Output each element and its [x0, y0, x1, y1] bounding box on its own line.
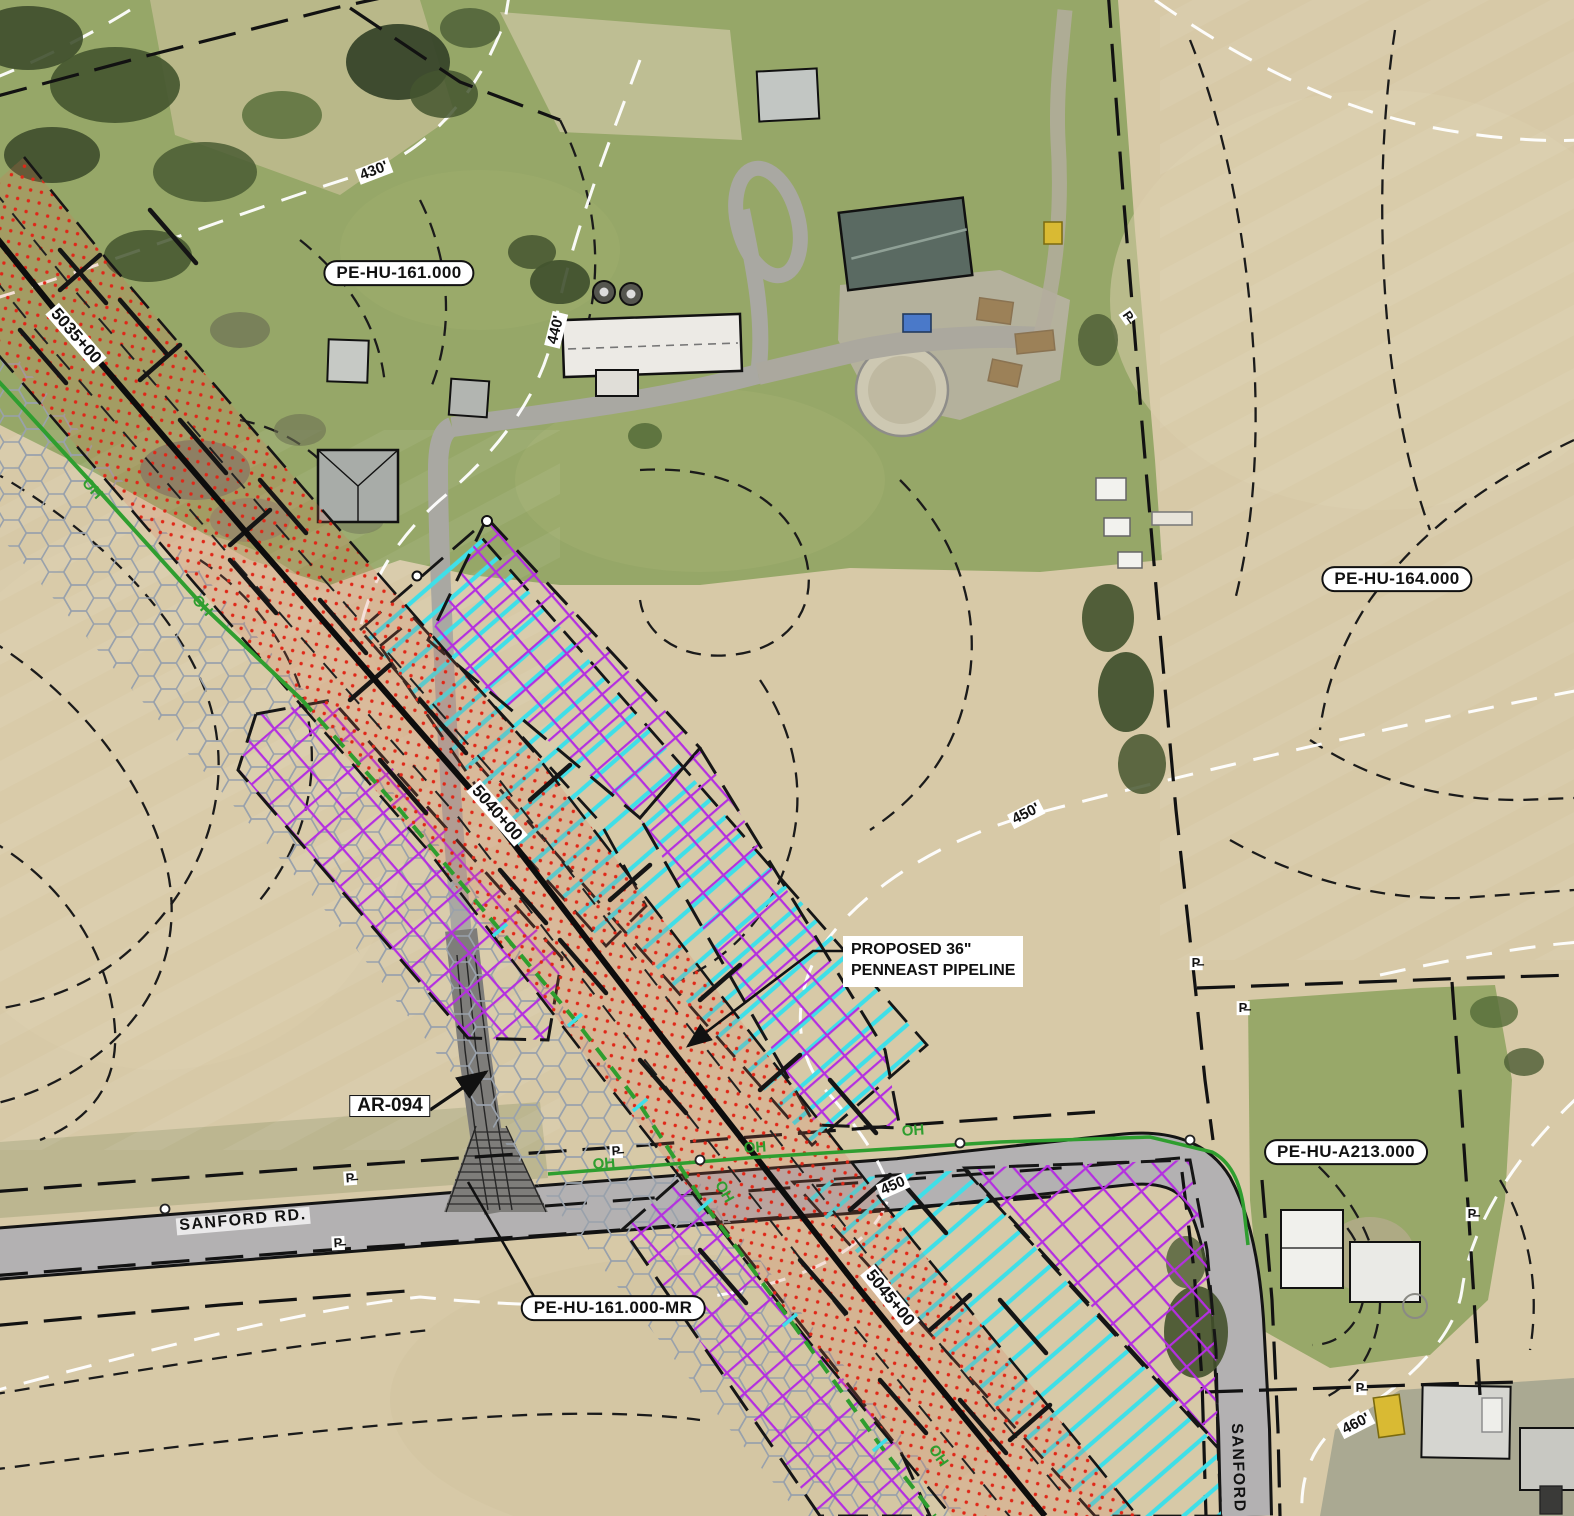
pipeline-callout-line2: PENNEAST PIPELINE	[851, 961, 1015, 982]
workspace-corner-marker-icon	[482, 516, 492, 526]
road-name-label: SANFORD	[1227, 1420, 1247, 1516]
parcel-label: PE-HU-161.000	[323, 260, 474, 286]
property-line-marker: P̶	[1466, 1207, 1479, 1221]
utility-pole-icon	[161, 1205, 170, 1214]
property-line-marker: P̶	[331, 1236, 344, 1250]
map-sheet: PE-HU-161.000 PE-HU-164.000 PE-HU-A213.0…	[0, 0, 1574, 1516]
parcel-label: PE-HU-161.000-MR	[521, 1295, 706, 1321]
aerial-map-canvas	[0, 0, 1574, 1516]
overhead-utility-label: OH	[743, 1139, 767, 1156]
parcel-label: PE-HU-A213.000	[1264, 1139, 1428, 1165]
property-line-marker: P̶	[343, 1171, 357, 1185]
property-line-marker: P̶	[1354, 1381, 1367, 1395]
pipeline-callout: PROPOSED 36" PENNEAST PIPELINE	[843, 936, 1023, 987]
property-line-marker: P̶	[1237, 1001, 1250, 1015]
parcel-label: PE-HU-164.000	[1321, 566, 1472, 592]
property-line-marker: P̶	[1190, 956, 1203, 970]
pipeline-callout-line1: PROPOSED 36"	[851, 940, 1015, 961]
overhead-utility-label: OH	[901, 1122, 925, 1139]
access-road-label: AR-094	[349, 1095, 430, 1117]
property-line-marker: P̶	[609, 1144, 622, 1158]
workspace-corner-marker-icon	[413, 572, 422, 581]
